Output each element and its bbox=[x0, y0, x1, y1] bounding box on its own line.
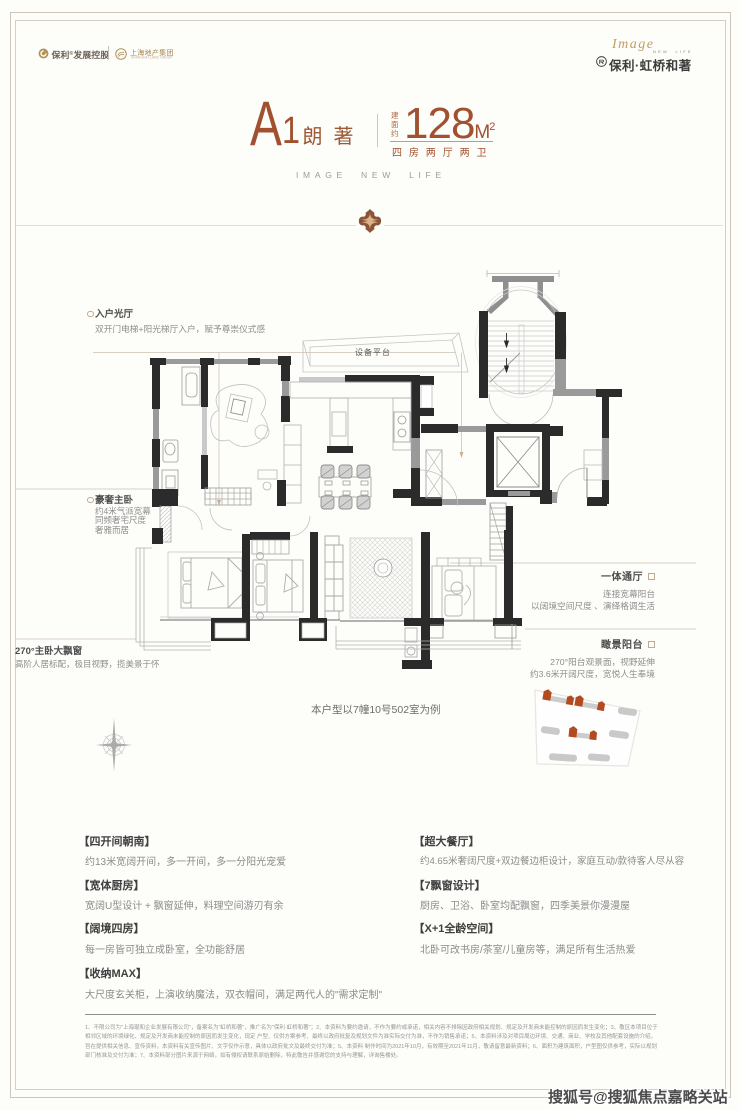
svg-text:设备平台: 设备平台 bbox=[355, 347, 391, 357]
